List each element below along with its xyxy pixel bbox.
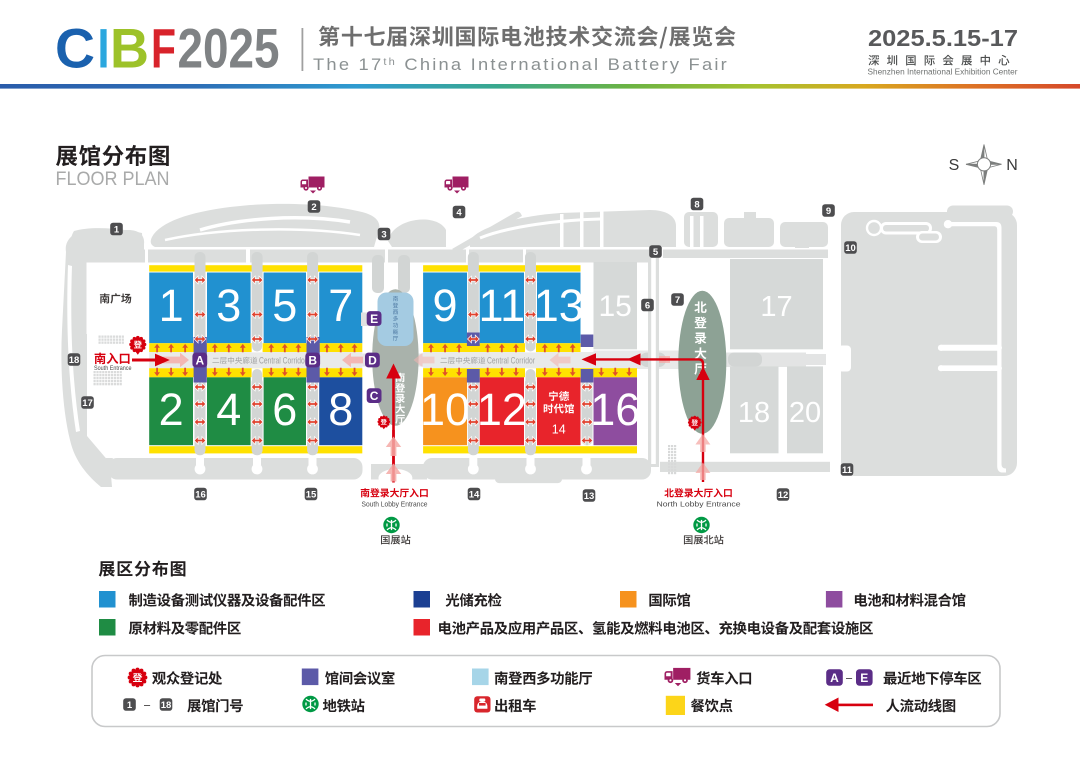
svg-text:10: 10: [845, 243, 856, 254]
svg-text:17: 17: [760, 291, 792, 323]
svg-text:18: 18: [161, 700, 172, 711]
svg-text:1: 1: [159, 280, 184, 331]
svg-text:7: 7: [675, 295, 680, 306]
svg-text:13: 13: [534, 280, 584, 331]
svg-text:North Lobby Entrance: North Lobby Entrance: [657, 500, 741, 509]
svg-text:D: D: [368, 353, 377, 367]
svg-text:S: S: [949, 157, 960, 174]
svg-text:12: 12: [477, 384, 527, 435]
svg-text:6: 6: [645, 300, 650, 311]
svg-text:2025.5.15-17: 2025.5.15-17: [868, 25, 1018, 51]
svg-text:11: 11: [842, 465, 853, 476]
svg-text:Shenzhen International Exhibit: Shenzhen International Exhibition Center: [868, 67, 1018, 77]
svg-text:1: 1: [114, 224, 120, 235]
svg-text:South Entrance: South Entrance: [94, 365, 132, 372]
svg-text:14: 14: [552, 423, 566, 437]
svg-text:6: 6: [272, 384, 297, 435]
svg-text:10: 10: [420, 384, 470, 435]
svg-text:C: C: [55, 17, 95, 80]
svg-text:2025: 2025: [178, 17, 280, 80]
svg-text:I: I: [98, 17, 110, 80]
svg-text:16: 16: [195, 489, 206, 500]
svg-text:Central Corridor: Central Corridor: [259, 355, 307, 365]
svg-text:3: 3: [381, 229, 386, 240]
svg-text:9: 9: [433, 280, 458, 331]
svg-text:15: 15: [599, 290, 632, 323]
svg-text:15: 15: [306, 489, 317, 500]
svg-text:South Lobby Entrance: South Lobby Entrance: [362, 500, 428, 509]
svg-text:E: E: [860, 671, 868, 685]
svg-text:C: C: [370, 389, 379, 403]
svg-text:13: 13: [584, 491, 595, 502]
svg-text:18: 18: [738, 397, 770, 429]
svg-text:E: E: [370, 312, 378, 326]
svg-text:17: 17: [82, 398, 93, 409]
svg-text:F: F: [151, 17, 176, 80]
svg-text:8: 8: [328, 384, 353, 435]
svg-text:FLOOR PLAN: FLOOR PLAN: [56, 168, 170, 190]
svg-text:A: A: [195, 353, 204, 367]
svg-text:2: 2: [159, 384, 184, 435]
svg-text:16: 16: [590, 384, 640, 435]
svg-text:–: –: [846, 673, 853, 685]
svg-text:2: 2: [311, 202, 316, 213]
svg-text:B: B: [110, 17, 149, 80]
svg-text:The 17th China International B: The 17th China International Battery Fai…: [313, 56, 729, 74]
svg-text:5: 5: [653, 247, 659, 258]
svg-text:12: 12: [778, 490, 789, 501]
svg-text:8: 8: [694, 199, 699, 210]
svg-text:4: 4: [456, 207, 462, 218]
svg-text:11: 11: [478, 280, 525, 331]
svg-text:Central Corridor: Central Corridor: [487, 355, 535, 365]
svg-text:4: 4: [216, 384, 241, 435]
svg-text:7: 7: [328, 280, 353, 331]
svg-text:14: 14: [469, 489, 480, 500]
svg-text:–: –: [144, 700, 151, 712]
svg-text:1: 1: [127, 700, 133, 711]
svg-text:20: 20: [789, 397, 821, 429]
svg-text:18: 18: [69, 355, 80, 366]
svg-text:5: 5: [272, 280, 297, 331]
svg-text:A: A: [830, 671, 839, 685]
svg-text:N: N: [1006, 157, 1018, 174]
svg-text:9: 9: [826, 206, 831, 217]
svg-text:B: B: [308, 353, 317, 367]
svg-text:3: 3: [216, 280, 241, 331]
